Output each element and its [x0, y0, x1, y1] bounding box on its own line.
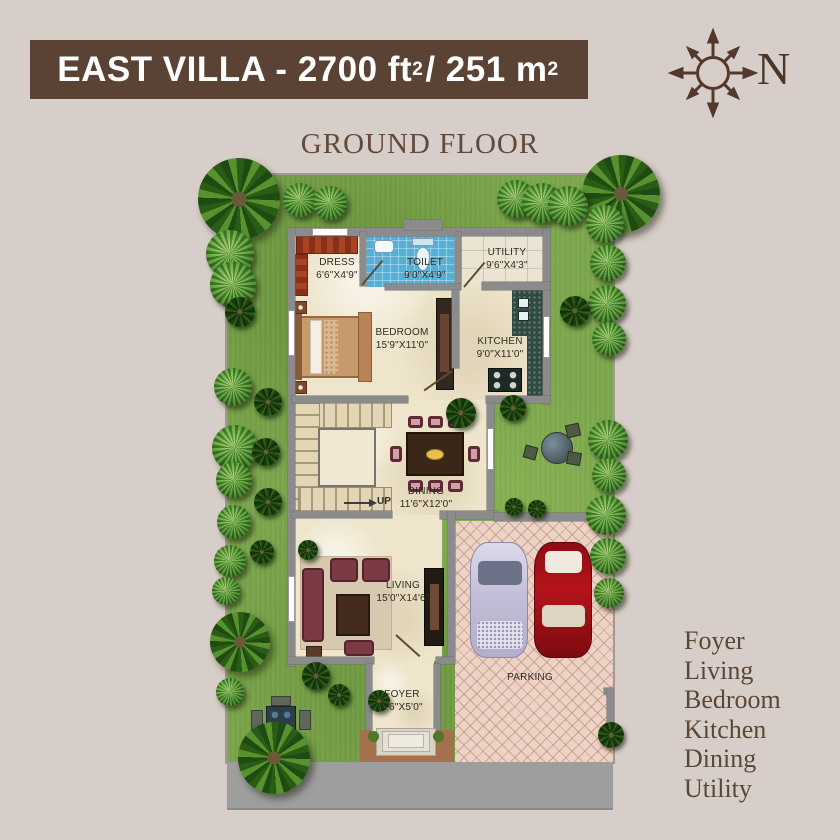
- wall: [482, 282, 550, 290]
- floor-subtitle: GROUND FLOOR: [227, 128, 613, 161]
- toilet-vent-block: [404, 220, 442, 230]
- legend-item: Kitchen: [684, 715, 781, 745]
- room-dim: 6'6"X5'0": [381, 702, 423, 713]
- palm-shrub: [250, 540, 274, 564]
- patio-chair: [299, 710, 311, 730]
- floor-plan-page: EAST VILLA - 2700 ft2 / 251 m2 N GROUND …: [0, 0, 840, 840]
- dining-chair: [390, 446, 402, 462]
- wall: [292, 396, 408, 403]
- bush: [548, 186, 588, 226]
- compass-north-label: N: [757, 42, 790, 95]
- bush: [216, 462, 252, 498]
- room-label-utility: UTILITY 9'6"X4'3": [462, 246, 552, 272]
- wall: [436, 657, 455, 664]
- car-windshield: [478, 561, 522, 585]
- room-dim: 11'6"X12'0": [400, 499, 452, 510]
- palm-shrub: [328, 684, 350, 706]
- palm-tree: [198, 158, 280, 240]
- palm-shrub: [560, 296, 590, 326]
- car-hood: [477, 621, 523, 649]
- entry-step: [388, 734, 424, 748]
- car-red: [534, 542, 592, 658]
- title-sup-ft: 2: [412, 59, 423, 81]
- legend-item: Dining: [684, 744, 781, 774]
- bush: [313, 186, 347, 220]
- sofa-single: [330, 558, 358, 582]
- dining-chair: [428, 416, 443, 428]
- palm-shrub: [302, 662, 330, 690]
- compass-rose-icon: [663, 23, 763, 123]
- room-name: DINING: [408, 486, 444, 497]
- bush: [588, 285, 626, 323]
- dining-plate: [426, 449, 444, 460]
- window: [288, 576, 295, 622]
- legend-item: Living: [684, 656, 781, 686]
- palm-shrub: [598, 722, 624, 748]
- bush: [590, 538, 626, 574]
- kitchen-stove: [488, 368, 522, 392]
- bush: [594, 578, 624, 608]
- car-silver: [470, 542, 528, 658]
- legend-item: Foyer: [684, 626, 781, 656]
- bush: [592, 322, 626, 356]
- window: [487, 428, 494, 470]
- room-dim: 9'6"X4'3": [486, 260, 528, 271]
- title-text: EAST VILLA - 2700 ft: [57, 50, 412, 90]
- stairs-up-label: UP: [377, 496, 391, 507]
- room-dim: 9'0"X11'0": [477, 349, 524, 360]
- legend-item: Bedroom: [684, 685, 781, 715]
- room-dim: 15'9"X11'0": [376, 340, 428, 351]
- car-roof: [545, 551, 582, 573]
- title-sup-m: 2: [548, 59, 559, 81]
- room-label-foyer: FOYER 6'6"X5'0": [357, 688, 447, 714]
- bush: [217, 505, 251, 539]
- palm-shrub: [254, 388, 282, 416]
- room-dim: 9'0"X4'9": [404, 270, 446, 281]
- wall: [385, 284, 461, 290]
- bush: [216, 678, 244, 706]
- room-dim: 6'6"X4'9": [316, 270, 358, 281]
- bush: [214, 368, 252, 406]
- legend-item: Utility: [684, 774, 781, 804]
- bed-blanket: [324, 320, 338, 374]
- kitchen-sink: [518, 298, 529, 308]
- room-name: UTILITY: [488, 247, 527, 258]
- room-name: FOYER: [384, 689, 419, 700]
- room-name: BEDROOM: [375, 327, 428, 338]
- palm-shrub: [254, 488, 282, 516]
- bush: [590, 245, 626, 281]
- palm-shrub: [505, 498, 523, 516]
- dining-chair: [468, 446, 480, 462]
- room-label-dining: DINING 11'6"X12'0": [381, 485, 471, 511]
- garden-chair: [566, 451, 582, 466]
- dress-wardrobe-top: [296, 236, 358, 254]
- palm-shrub: [500, 395, 526, 421]
- kitchen-sink-2: [518, 311, 529, 321]
- wall: [292, 511, 392, 518]
- entry-planter: [368, 731, 379, 742]
- palm-shrub: [446, 398, 476, 428]
- palm-tree: [210, 612, 270, 672]
- room-name: DRESS: [319, 257, 354, 268]
- nightstand-top: [294, 301, 307, 314]
- ottoman: [344, 640, 374, 656]
- room-name: TOILET: [407, 257, 443, 268]
- palm-shrub: [252, 438, 280, 466]
- stairs-landing: [318, 428, 376, 487]
- room-name: LIVING: [386, 580, 420, 591]
- stairs-up-arrow: [344, 502, 370, 504]
- entry-planter: [433, 731, 444, 742]
- title-banner: EAST VILLA - 2700 ft2 / 251 m2: [30, 40, 588, 99]
- room-label-kitchen: KITCHEN 9'0"X11'0": [455, 335, 545, 361]
- room-label-bedroom: BEDROOM 15'9"X11'0": [357, 326, 447, 352]
- window: [288, 310, 295, 356]
- bed-pillows: [310, 320, 322, 374]
- bush: [592, 458, 626, 492]
- patio-chair: [271, 696, 291, 706]
- toilet-sink: [374, 240, 394, 253]
- bush: [214, 545, 246, 577]
- window: [312, 228, 348, 236]
- bush: [283, 183, 317, 217]
- dining-chair: [408, 416, 423, 428]
- bush: [588, 420, 628, 460]
- room-label-toilet: TOILET 9'0"X4'9": [380, 256, 470, 282]
- room-label-dress: DRESS 6'6"X4'9": [292, 256, 382, 282]
- palm-shrub: [225, 297, 255, 327]
- car-windshield: [542, 605, 585, 627]
- title-text-2: / 251 m: [425, 50, 547, 90]
- room-legend: Foyer Living Bedroom Kitchen Dining Util…: [684, 626, 781, 803]
- toilet-tank: [412, 238, 434, 246]
- room-name: KITCHEN: [477, 336, 522, 347]
- bush: [586, 495, 626, 535]
- palm-shrub: [298, 540, 318, 560]
- bush: [212, 577, 240, 605]
- room-dim: 15'0"X14'6": [376, 593, 429, 604]
- wall: [448, 511, 455, 664]
- palm-tree: [238, 722, 310, 794]
- sofa-long: [302, 568, 324, 642]
- parking-label: PARKING: [485, 671, 575, 684]
- room-label-living: LIVING 15'0"X14'6": [358, 579, 448, 605]
- wall: [288, 657, 374, 664]
- bush: [586, 205, 624, 243]
- bed-headboard: [294, 314, 302, 380]
- nightstand-bottom: [294, 381, 307, 394]
- palm-shrub: [528, 500, 546, 518]
